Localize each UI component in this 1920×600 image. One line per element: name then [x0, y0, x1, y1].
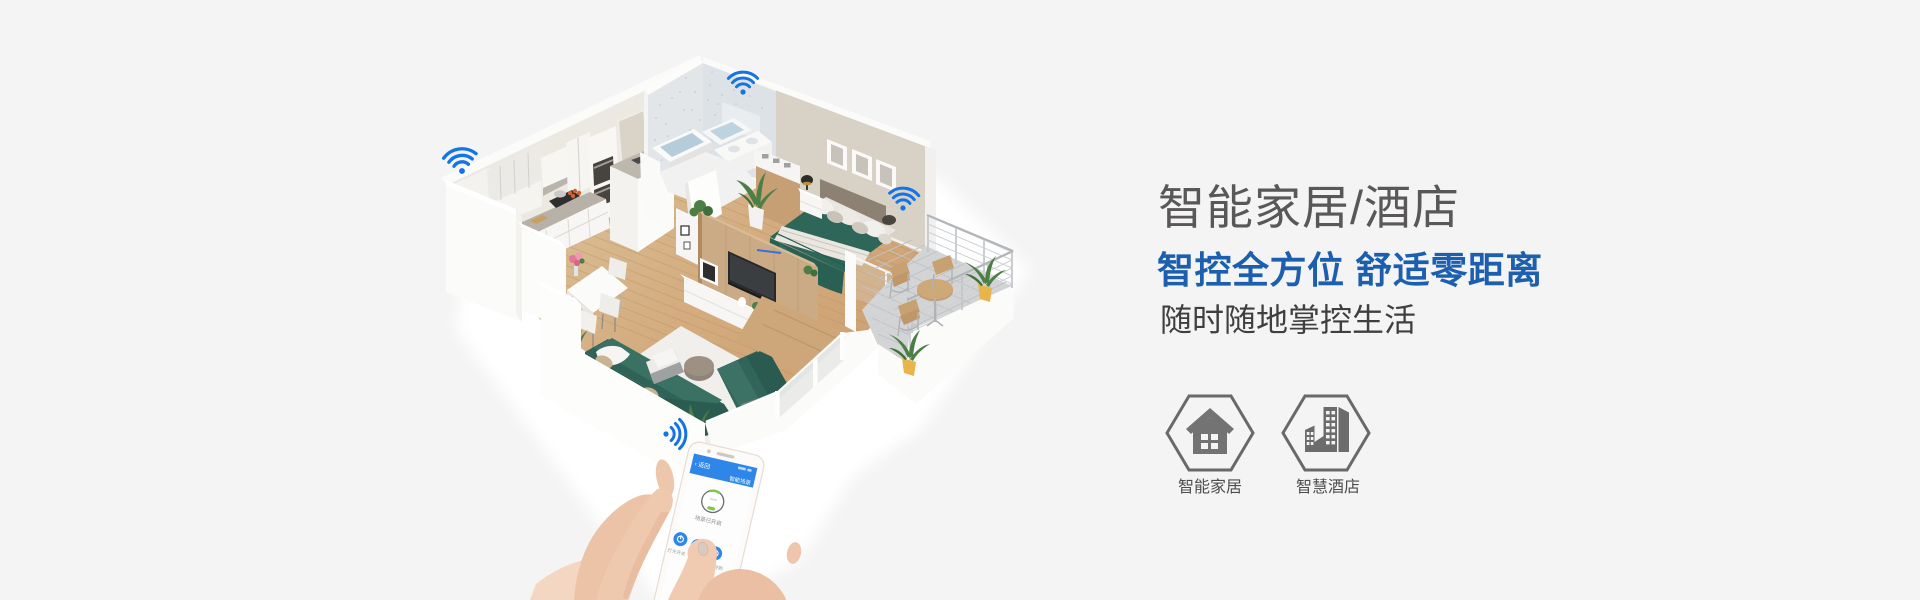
svg-text:智慧酒店: 智慧酒店 [1296, 478, 1360, 496]
svg-text:智能家居: 智能家居 [1178, 478, 1242, 496]
